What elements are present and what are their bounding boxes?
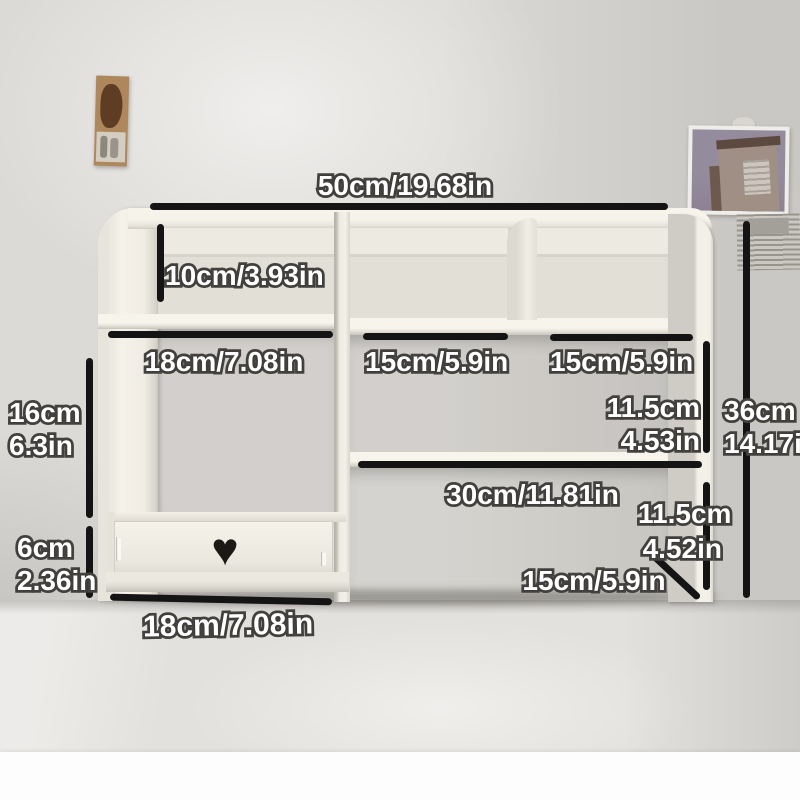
dim-label-left-section-width: 18cm/7.08in xyxy=(144,345,304,378)
drawer-height-in: 2.36in xyxy=(17,564,96,597)
desk-surface xyxy=(0,600,800,755)
dim-line-middle-shelf-width xyxy=(363,333,508,340)
left-opening-height-cm: 16cm xyxy=(9,396,81,429)
dim-line-middle-row-height xyxy=(703,341,710,453)
bottom-white-margin xyxy=(0,752,800,800)
drawer-height-cm: 6cm xyxy=(17,531,96,564)
middle-row-height-cm: 11.5cm xyxy=(600,391,700,424)
drawer-handle-notch xyxy=(321,552,326,566)
middle-cubby-backboard xyxy=(350,228,508,320)
polaroid-image xyxy=(691,129,785,211)
dim-label-left-opening-height: 16cm 6.3in xyxy=(9,396,81,462)
dim-label-middle-shelf-width: 15cm/5.9in xyxy=(365,345,505,378)
overall-height-in: 14.17in xyxy=(724,427,800,460)
heart-cutout-icon: ♥ xyxy=(202,528,248,570)
dim-label-top-width: 50cm/19.68in xyxy=(270,169,540,202)
dim-label-overall-height: 36cm 14.17in xyxy=(724,394,800,460)
dim-label-drawer-width: 18cm/7.08in xyxy=(143,608,309,644)
shelf-top-board xyxy=(128,208,712,229)
left-shelf-board xyxy=(98,314,346,329)
dim-label-lower-shelf-width: 30cm/11.81in xyxy=(440,478,625,511)
dim-line-lower-shelf-width xyxy=(358,461,702,468)
drawer-base-board xyxy=(106,572,349,592)
small-cubby-divider xyxy=(507,218,537,320)
card-figure xyxy=(100,136,108,158)
lower-right-height-in: 4.52in xyxy=(638,531,722,566)
dim-line-left-section-width xyxy=(108,331,333,338)
dim-label-right-shelf-width: 15cm/5.9in xyxy=(550,345,692,378)
dim-line-left-opening-height xyxy=(86,358,93,518)
lower-right-height-cm: 11.5cm xyxy=(638,496,722,531)
dim-line-right-shelf-width xyxy=(550,334,693,341)
wall-art-card xyxy=(94,76,130,167)
dim-label-upper-left-cubby-height: 10cm/3.93in xyxy=(165,259,324,292)
overall-height-cm: 36cm xyxy=(724,394,800,427)
card-figure xyxy=(110,138,119,158)
dim-label-drawer-height: 6cm 2.36in xyxy=(17,531,96,597)
product-dimension-photo: ♥ 50cm/19.68in 10cm/3.93in 18cm/7.08in 1… xyxy=(0,0,800,800)
left-opening-height-in: 6.3in xyxy=(9,429,81,462)
dim-line-top-width xyxy=(150,203,668,210)
drawer-handle-notch xyxy=(116,537,121,561)
polaroid-photo xyxy=(687,125,789,215)
dim-label-lower-right-height: 11.5cm 4.52in xyxy=(638,496,722,566)
building-sign xyxy=(743,160,771,195)
middle-row-height-in: 4.53in xyxy=(600,424,700,457)
dim-label-base-depth: 15cm/5.9in xyxy=(518,564,670,597)
card-artwork xyxy=(100,84,123,129)
vertical-divider-panel xyxy=(334,212,350,602)
right-cubby-backboard xyxy=(536,228,670,320)
dim-line-upper-left-cubby-height xyxy=(157,224,164,302)
dim-label-middle-row-height: 11.5cm 4.53in xyxy=(600,391,700,457)
